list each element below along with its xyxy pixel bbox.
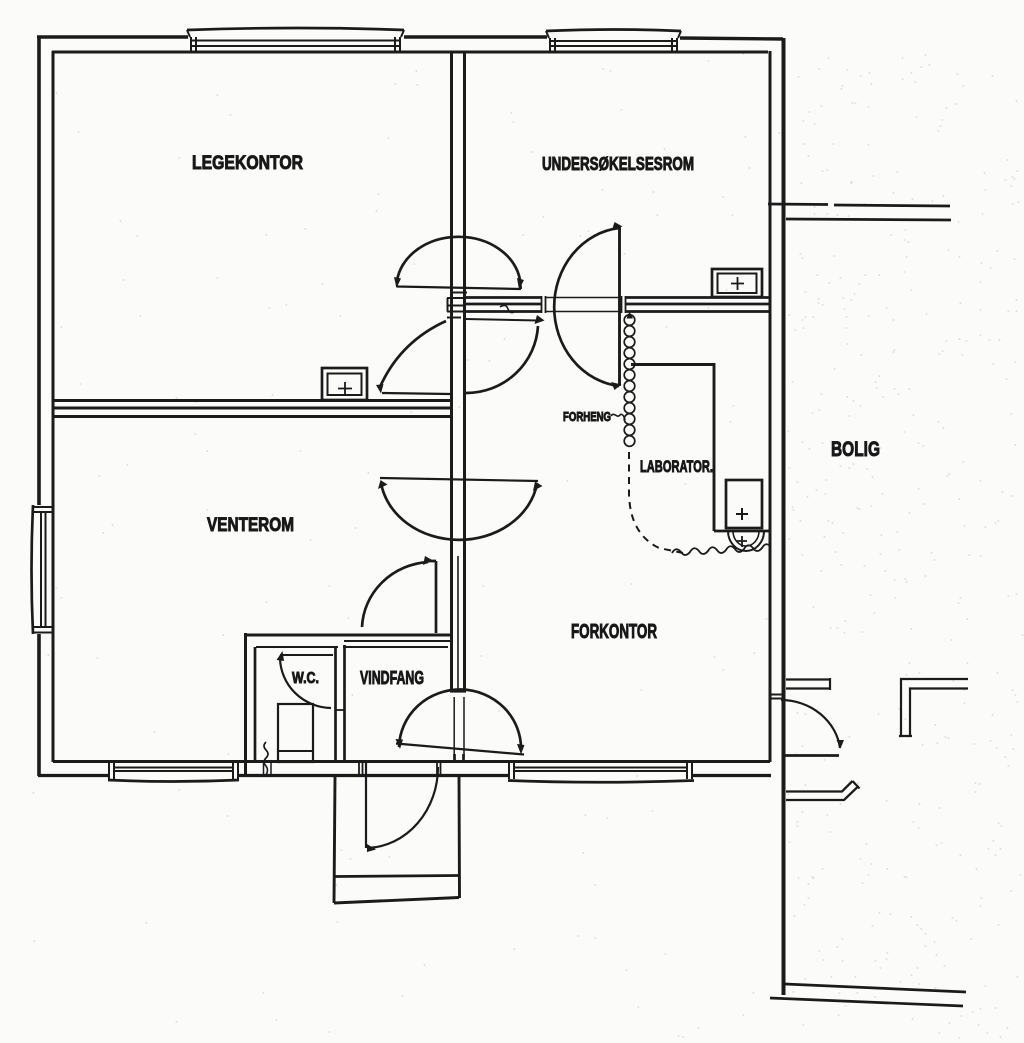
svg-text:LABORATOR.: LABORATOR. [640,458,713,476]
svg-text:LEGEKONTOR: LEGEKONTOR [192,153,303,174]
svg-text:FORHENG: FORHENG [563,409,611,424]
svg-text:W.C.: W.C. [292,670,319,687]
svg-text:UNDERSØKELSESROM: UNDERSØKELSESROM [542,154,694,174]
svg-text:BOLIG: BOLIG [831,438,880,461]
svg-text:FORKONTOR: FORKONTOR [571,621,657,643]
svg-text:VENTEROM: VENTEROM [207,514,294,536]
svg-text:VINDFANG: VINDFANG [360,667,424,688]
